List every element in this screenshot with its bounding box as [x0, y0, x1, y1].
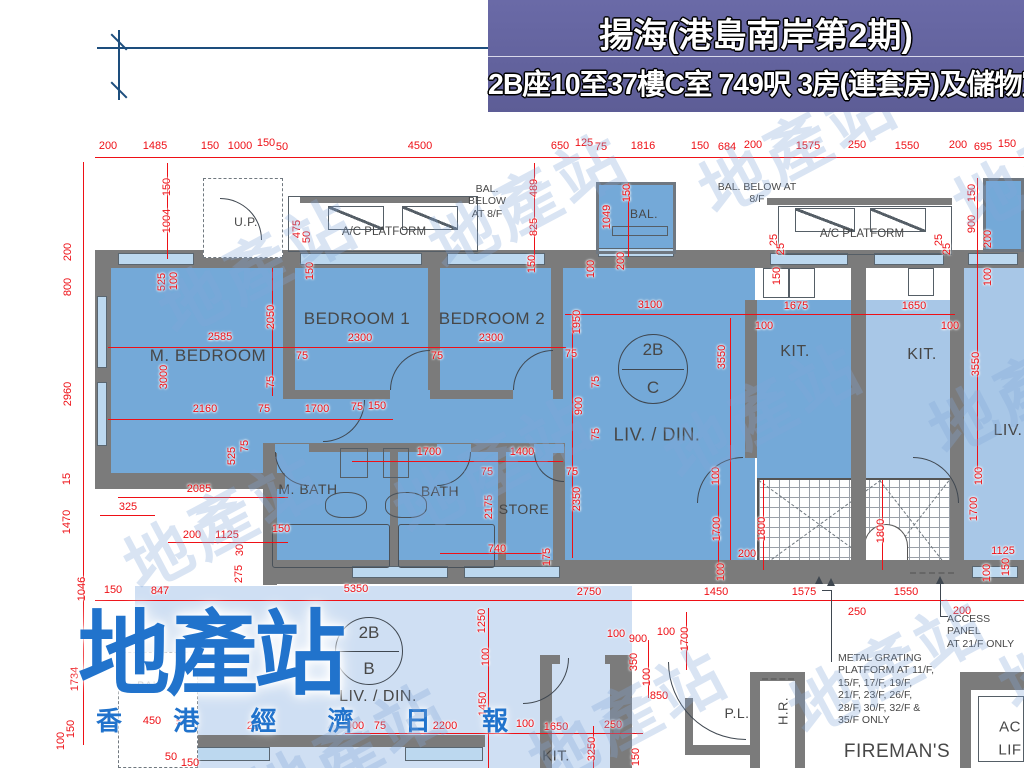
dim-label: 525	[226, 447, 238, 465]
dim-label: 25	[775, 243, 787, 255]
plan-annotation: BAL. BELOW AT 8/F	[468, 183, 506, 220]
dim-label: 684	[718, 141, 736, 153]
dim-label: 3550	[716, 345, 728, 369]
dim-label: 150	[1000, 558, 1012, 576]
dim-label: 75	[239, 440, 251, 452]
leader-arrow-icon	[827, 578, 835, 586]
wall	[95, 250, 111, 489]
dim-label: 100	[715, 563, 727, 581]
dim-label: 2960	[62, 382, 74, 406]
dim-label: 2160	[193, 403, 217, 415]
dim-label: 150	[272, 523, 290, 535]
dimension-line	[730, 318, 731, 560]
leader-line	[940, 583, 941, 617]
dim-label: 1700	[711, 517, 723, 541]
dim-label: 1485	[143, 140, 167, 152]
room-label: AC	[999, 719, 1021, 736]
unit-badge: 2BC	[618, 334, 688, 404]
dim-label: 250	[848, 606, 866, 618]
unit-badge-block: 2B	[619, 340, 687, 360]
unit-badge-divider	[622, 369, 684, 370]
wall	[851, 268, 866, 562]
fixture-outline	[612, 226, 668, 236]
room-label: KIT.	[907, 346, 937, 364]
dimension-line	[565, 314, 955, 315]
dim-label: 75	[481, 466, 493, 478]
dim-label: 100	[755, 320, 773, 332]
unit-badge-flat: C	[619, 378, 687, 398]
dim-label: 4500	[408, 140, 432, 152]
dim-label: 2085	[187, 483, 211, 495]
room-label: P.L.	[724, 705, 749, 721]
dim-label: 1000	[228, 140, 252, 152]
fixture-outline	[908, 268, 934, 296]
dim-label: 100	[982, 268, 994, 286]
fixture-outline	[762, 678, 794, 680]
wall	[283, 268, 295, 398]
window	[300, 253, 422, 265]
dim-label: 150	[201, 140, 219, 152]
dim-label: 3000	[158, 365, 170, 389]
dim-label: 100	[55, 732, 67, 750]
dim-label: 325	[119, 501, 137, 513]
dim-label: 150	[161, 178, 173, 196]
dim-label: 1700	[305, 403, 329, 415]
dim-label: 75	[566, 466, 578, 478]
dim-label: 489	[528, 179, 540, 197]
room-label: BEDROOM 1	[304, 309, 411, 329]
dim-label: 825	[528, 218, 540, 236]
site-logo-subtext: 香 港 經 濟 日 報	[96, 701, 530, 738]
dim-label: 75	[258, 403, 270, 415]
room-label: M. BATH	[278, 481, 337, 497]
dimension-line	[168, 542, 288, 543]
dim-label: 1049	[601, 205, 613, 229]
dim-label: 1125	[215, 529, 239, 541]
dim-label: 2050	[265, 305, 277, 329]
dim-label: 1575	[792, 586, 816, 598]
dim-label: 200	[62, 243, 74, 261]
dim-label: 1800	[875, 519, 887, 543]
banner-divider	[488, 56, 1024, 57]
room-label: BAL.	[630, 207, 658, 221]
dim-label: 695	[974, 141, 992, 153]
room-label: M. BEDROOM	[150, 346, 266, 366]
dim-label: 1950	[571, 310, 583, 334]
dim-label: 150	[621, 184, 633, 202]
fixture-outline	[383, 448, 409, 478]
dim-label: 3250	[586, 737, 598, 761]
dim-label: 2300	[479, 332, 503, 344]
dim-label: 100	[168, 272, 180, 290]
dim-label: 1700	[968, 497, 980, 521]
room-label: LIV. / DIN.	[614, 425, 701, 446]
dim-label: 1675	[784, 300, 808, 312]
site-logo-text: 地產站	[78, 580, 342, 713]
floorplan-page: 2001485150100015050450065012575181615068…	[0, 0, 1024, 768]
fixture-outline	[398, 524, 495, 568]
dim-label: 1470	[61, 510, 73, 534]
dim-label: 1700	[679, 627, 691, 651]
dim-label: 200	[615, 252, 627, 270]
plan-annotation: METAL GRATING PLATFORM AT 11/F, 15/F, 17…	[838, 652, 934, 726]
plan-annotation: BAL. BELOW AT 8/F	[718, 181, 797, 206]
dim-label: 2350	[571, 487, 583, 511]
room-label: FIREMAN'S	[844, 741, 950, 763]
wall	[750, 672, 760, 768]
window	[97, 382, 107, 446]
dim-label: 1700	[417, 446, 441, 458]
door-opening	[390, 390, 430, 400]
dim-label: 1575	[796, 140, 820, 152]
wall	[795, 672, 805, 768]
dim-label: 150	[691, 140, 709, 152]
room-label: KIT.	[780, 343, 810, 361]
leader-line	[822, 590, 832, 591]
dim-label: 1004	[161, 209, 173, 233]
dim-label: 50	[276, 141, 288, 153]
dim-label: 1650	[902, 300, 926, 312]
room-label: LIF	[998, 742, 1021, 759]
window	[405, 747, 483, 761]
dim-label: 350	[628, 653, 640, 671]
plan-annotation: A/C PLATFORM	[342, 226, 426, 240]
header-banner: 揚海(港島南岸第2期) 2B座10至37樓C室 749呎 3房(連套房)及儲物室	[488, 0, 1024, 112]
page-subtitle: 2B座10至37樓C室 749呎 3房(連套房)及儲物室	[488, 62, 1024, 103]
dim-label: 100	[641, 668, 653, 686]
dim-label: 150	[998, 138, 1016, 150]
dim-label: 1550	[895, 140, 919, 152]
leader-arrow-icon	[815, 576, 823, 584]
dim-label: 1650	[544, 721, 568, 733]
dim-label: 250	[604, 719, 622, 731]
dim-label: 1550	[894, 586, 918, 598]
unit-badge: 2BB	[335, 617, 403, 685]
dim-label: 75	[351, 401, 363, 413]
dim-label: 650	[551, 140, 569, 152]
wall	[685, 745, 757, 755]
leader-arrow-icon	[936, 576, 944, 584]
dim-label: 850	[650, 690, 668, 702]
unit-badge-divider	[339, 651, 399, 652]
boundary-line	[97, 47, 489, 49]
dim-label: 525	[156, 273, 168, 291]
dim-label: 75	[431, 350, 443, 362]
fixture-outline	[910, 572, 954, 574]
dim-label: 2585	[208, 331, 232, 343]
dim-label: 150	[771, 267, 783, 285]
dimension-line	[100, 515, 155, 516]
room-label: BEDROOM 2	[439, 309, 546, 329]
dim-label: 2750	[577, 586, 601, 598]
dim-label: 25	[941, 243, 953, 255]
wall	[960, 690, 971, 768]
dimension-line	[352, 461, 563, 462]
dim-label: 200	[738, 548, 756, 560]
dim-label: 100	[585, 260, 597, 278]
dim-label: 100	[657, 626, 675, 638]
dim-label: 740	[488, 543, 506, 555]
dim-label: 900	[966, 215, 978, 233]
dim-label: 3550	[970, 352, 982, 376]
dim-label: 100	[607, 628, 625, 640]
dim-label: 50	[165, 751, 177, 763]
dim-label: 1250	[476, 609, 488, 633]
dim-label: 150	[181, 757, 199, 768]
dim-label: 50	[301, 231, 313, 243]
dim-label: 75	[265, 376, 277, 388]
dimension-line	[108, 419, 393, 420]
dim-label: 100	[480, 648, 492, 666]
room-label: KIT.	[542, 748, 570, 765]
door-opening	[513, 390, 553, 400]
dim-label: 15	[61, 473, 73, 485]
leader-line	[831, 590, 832, 662]
unit-badge-flat: B	[336, 659, 402, 679]
dim-label: 100	[981, 564, 993, 582]
dim-label: 250	[848, 139, 866, 151]
dim-label: 800	[62, 278, 74, 296]
dim-label: 100	[941, 320, 959, 332]
unit-badge-block: 2B	[336, 623, 402, 643]
dim-label: 200	[744, 139, 762, 151]
dim-label: 75	[296, 350, 308, 362]
dim-label: 200	[949, 139, 967, 151]
dim-label: 1400	[510, 446, 534, 458]
dim-label: 150	[966, 184, 978, 202]
room-label: STORE	[499, 501, 549, 517]
dim-label: 1125	[991, 545, 1015, 557]
room-label: LIV.	[994, 422, 1023, 440]
wall	[950, 250, 964, 584]
room-label: U.P.	[234, 215, 258, 229]
page-title: 揚海(港島南岸第2期)	[488, 8, 1024, 57]
dim-label: 1800	[756, 517, 768, 541]
dim-label: 30	[234, 544, 246, 556]
dim-label: 3100	[638, 299, 662, 311]
dim-label: 900	[573, 397, 585, 415]
dim-label: 5350	[344, 583, 368, 595]
dim-label: 75	[590, 428, 602, 440]
dim-label: 150	[630, 748, 642, 766]
dim-label: 1450	[704, 586, 728, 598]
dim-label: 175	[541, 548, 553, 566]
dim-label: 100	[710, 467, 722, 485]
dim-label: 100	[973, 467, 985, 485]
wall	[610, 663, 632, 768]
dim-label: 200	[183, 529, 201, 541]
fixture-outline	[340, 448, 368, 478]
dimension-line	[118, 497, 288, 498]
dimension-line	[488, 608, 489, 768]
dim-label: 75	[590, 376, 602, 388]
room-label: H.R.	[776, 697, 791, 725]
window	[118, 253, 194, 265]
window	[97, 296, 107, 368]
room-label: BATH	[421, 483, 459, 499]
dim-label: 200	[982, 230, 994, 248]
door-arc	[668, 662, 746, 740]
dim-label: 150	[368, 400, 386, 412]
dim-label: 150	[526, 255, 538, 273]
dim-label: 75	[565, 348, 577, 360]
wall	[960, 672, 1024, 690]
plan-annotation: A/C PLATFORM	[820, 228, 904, 242]
dim-label: 125	[575, 137, 593, 149]
dim-label: 2300	[348, 332, 372, 344]
plan-annotation: ACCESS PANEL AT 21/F ONLY	[947, 613, 1024, 650]
dim-label: 1816	[631, 140, 655, 152]
dim-label: 75	[595, 141, 607, 153]
dim-label: 150	[257, 137, 275, 149]
window	[968, 253, 1018, 265]
dimension-line	[95, 157, 1024, 158]
dim-label: 200	[99, 140, 117, 152]
dim-label: 2175	[483, 495, 495, 519]
dim-label: 900	[629, 633, 647, 645]
dim-label: 150	[304, 262, 316, 280]
